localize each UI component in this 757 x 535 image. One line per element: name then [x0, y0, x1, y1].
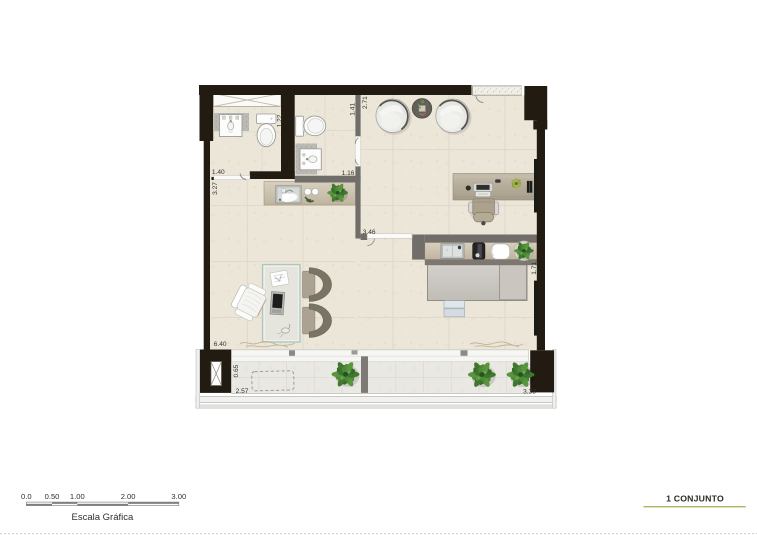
svg-text:1 CONJUNTO: 1 CONJUNTO [666, 493, 724, 503]
svg-text:Escala Gráfica: Escala Gráfica [72, 512, 134, 523]
svg-text:1.41: 1.41 [350, 103, 357, 116]
svg-text:1.16: 1.16 [342, 170, 355, 177]
svg-text:3.46: 3.46 [363, 229, 376, 236]
svg-text:1.40: 1.40 [212, 169, 225, 176]
svg-text:1.22: 1.22 [277, 114, 284, 127]
svg-text:3.00: 3.00 [171, 492, 186, 501]
svg-text:1.71: 1.71 [531, 262, 538, 275]
svg-text:1.00: 1.00 [70, 492, 85, 501]
svg-text:2.71: 2.71 [362, 96, 369, 109]
svg-text:6.40: 6.40 [214, 341, 227, 348]
svg-text:0.65: 0.65 [233, 364, 240, 377]
svg-text:3.27: 3.27 [212, 182, 219, 195]
svg-text:0.50: 0.50 [45, 492, 60, 501]
svg-text:0.0: 0.0 [21, 492, 32, 501]
svg-text:2.57: 2.57 [236, 388, 249, 395]
svg-text:2.00: 2.00 [121, 492, 136, 501]
svg-text:3.33: 3.33 [523, 389, 536, 396]
